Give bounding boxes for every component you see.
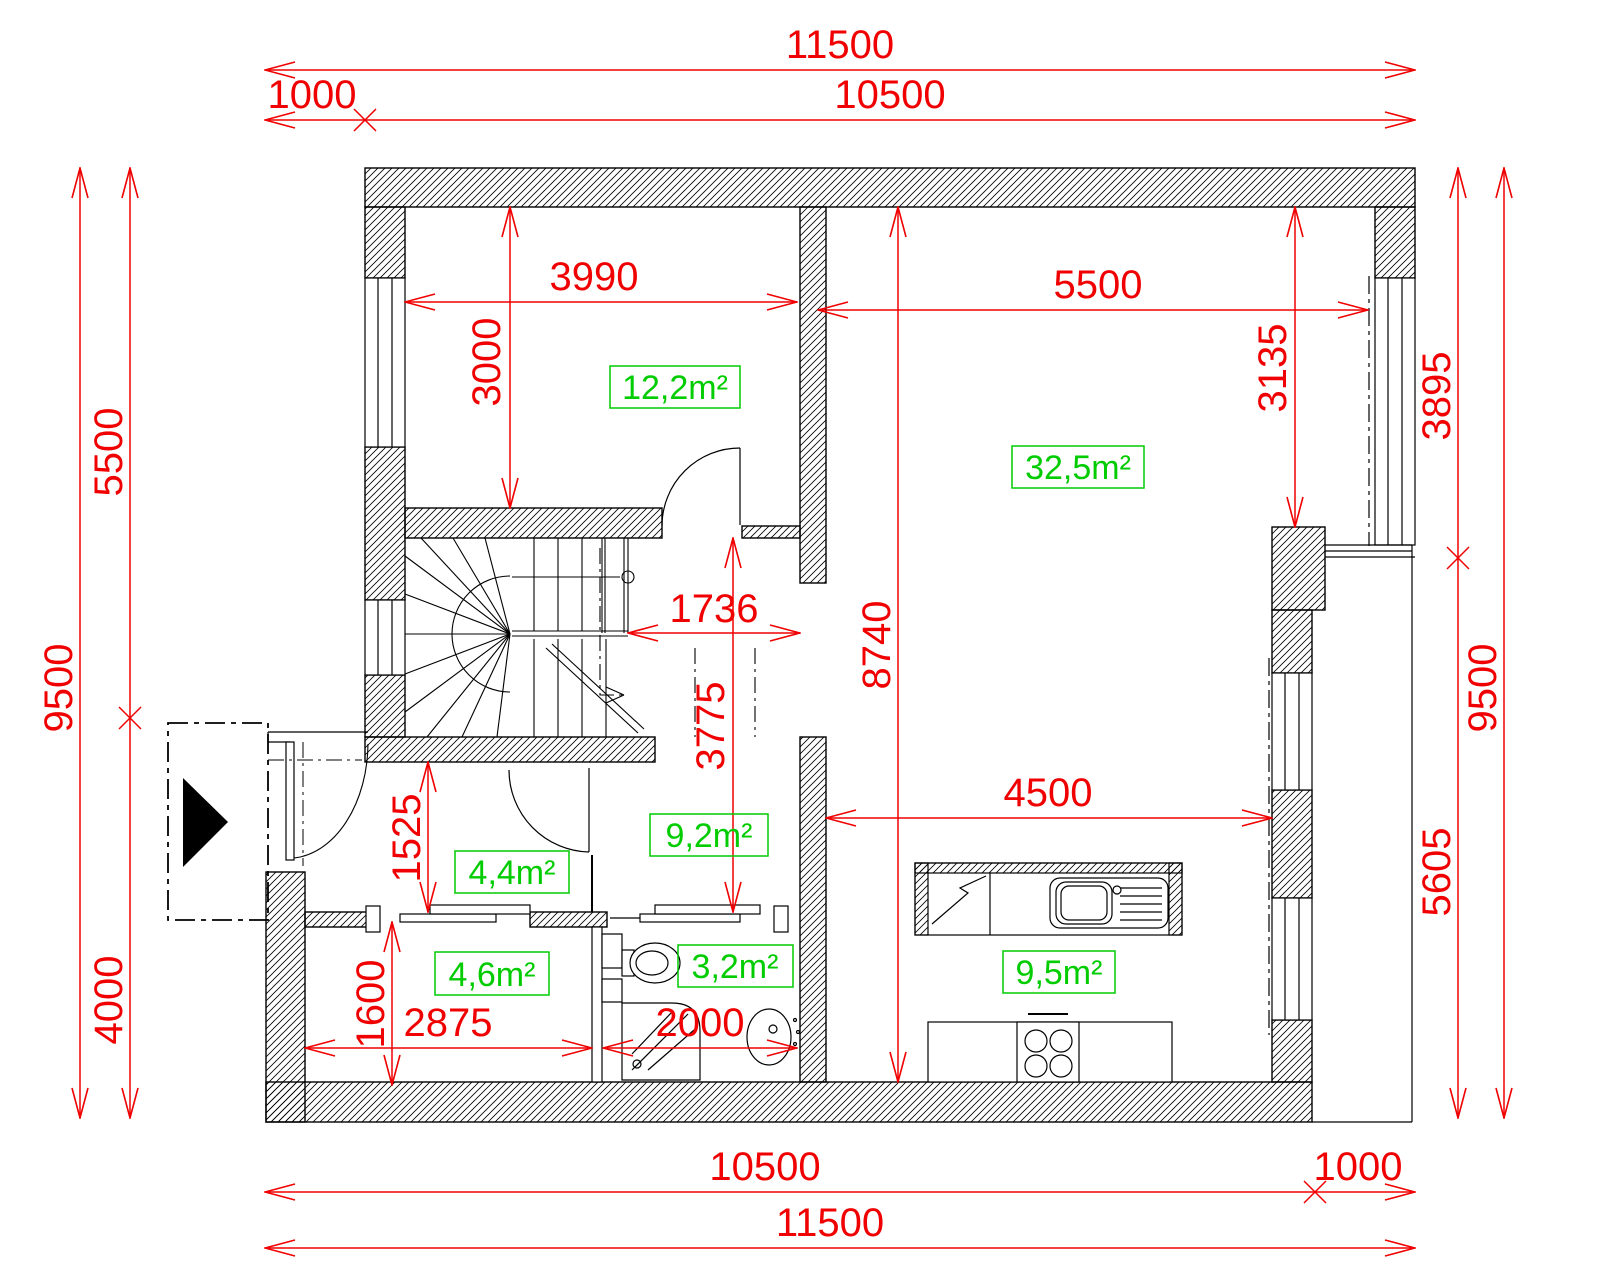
- dim-bottom-overall: 11500: [776, 1201, 884, 1245]
- wall-bedroom-stub: [742, 526, 800, 538]
- wall-left-upper-b: [365, 447, 405, 600]
- dim-bathroom-width: 2000: [656, 1001, 745, 1045]
- dim-storage-width: 2875: [404, 1001, 493, 1045]
- wall-right-corner-block: [1272, 527, 1325, 610]
- wall-top: [365, 168, 1415, 207]
- window-living-right: [1369, 276, 1415, 546]
- dim-hall-width: 1736: [670, 587, 759, 631]
- dim-right-lower: 5605: [1415, 828, 1459, 917]
- wall-stair-south: [365, 737, 655, 762]
- kitchen-island: [915, 863, 1182, 935]
- wall-bottom: [266, 1082, 1312, 1122]
- dim-living-width: 5500: [1054, 263, 1143, 307]
- stair-walk-line: [600, 548, 624, 695]
- dim-left-upper: 5500: [87, 408, 131, 497]
- entry-door-swing: [294, 744, 368, 858]
- dim-top-overall: 11500: [786, 23, 894, 67]
- dim-storage-height: 1600: [349, 960, 393, 1049]
- washbasin: [747, 1009, 800, 1065]
- dim-living-right: 3135: [1251, 324, 1295, 413]
- wall-partition-upper: [800, 207, 826, 583]
- stair-winders: [405, 538, 510, 737]
- entrance: [168, 723, 368, 920]
- storage-sliding-door: [366, 905, 530, 932]
- area-vestibule: 4,4m²: [469, 854, 556, 892]
- corner-window-sill: [1325, 545, 1415, 557]
- floor-plan-canvas: 11500 1000 10500 10500 1000 11500 9500 5…: [0, 0, 1600, 1280]
- window-kitchen-right-2: [1272, 898, 1312, 1020]
- pipe-duct-2: [602, 979, 622, 1002]
- wall-right-seg1: [1272, 610, 1312, 673]
- dim-hall-height: 3775: [689, 682, 733, 771]
- dim-right-overall: 9500: [1461, 644, 1505, 733]
- wall-right-seg3: [1272, 1020, 1312, 1082]
- floor-plan-svg: 11500 1000 10500 10500 1000 11500 9500 5…: [0, 0, 1600, 1280]
- dim-top-offset: 1000: [268, 73, 357, 117]
- dim-left-lower: 4000: [87, 956, 131, 1045]
- dim-vestibule-height: 1525: [385, 794, 429, 883]
- dim-bedroom-width: 3990: [550, 255, 639, 299]
- wall-left-upper-c: [365, 675, 405, 737]
- window-stair-left: [365, 600, 405, 675]
- area-bedroom: 12,2m²: [622, 369, 728, 407]
- bathroom-sliding-door: [610, 905, 788, 932]
- terrace-outline: [1312, 557, 1412, 1122]
- toilet: [622, 943, 680, 983]
- dim-top-main: 10500: [834, 73, 945, 117]
- wall-strip-b: [530, 912, 607, 927]
- area-storage: 4,6m²: [449, 956, 536, 994]
- wall-strip-a: [305, 912, 368, 927]
- exterior-walls: [266, 168, 1415, 1122]
- area-kitchen: 9,5m²: [1016, 954, 1103, 992]
- dim-bottom-main: 10500: [709, 1145, 820, 1189]
- dim-bedroom-height: 3000: [465, 318, 509, 407]
- window-kitchen-right-1: [1272, 673, 1312, 790]
- wall-bedroom-south: [405, 508, 662, 538]
- area-hall: 9,2m²: [666, 817, 753, 855]
- area-bathroom: 3,2m²: [692, 948, 779, 986]
- entrance-arrow-icon: [183, 778, 228, 867]
- dim-right-upper: 3895: [1415, 352, 1459, 441]
- wall-right-seg2: [1272, 790, 1312, 898]
- pipe-duct-1: [602, 934, 622, 968]
- dim-left-overall: 9500: [37, 644, 81, 733]
- kitchen-counter-stove: [928, 1014, 1172, 1082]
- area-living: 32,5m²: [1025, 449, 1131, 487]
- wall-left-upper-a: [365, 207, 405, 278]
- wall-partition-lower: [800, 737, 826, 1082]
- wall-right-upper: [1375, 207, 1415, 278]
- window-bedroom-left: [365, 278, 405, 447]
- dim-kitchen-width: 4500: [1004, 771, 1093, 815]
- dim-bottom-offset: 1000: [1314, 1145, 1403, 1189]
- stair-break-line: [546, 648, 638, 733]
- bedroom-door: [662, 448, 740, 526]
- dim-living-full: 8740: [855, 601, 899, 690]
- bath-storage-partition: [592, 927, 602, 1082]
